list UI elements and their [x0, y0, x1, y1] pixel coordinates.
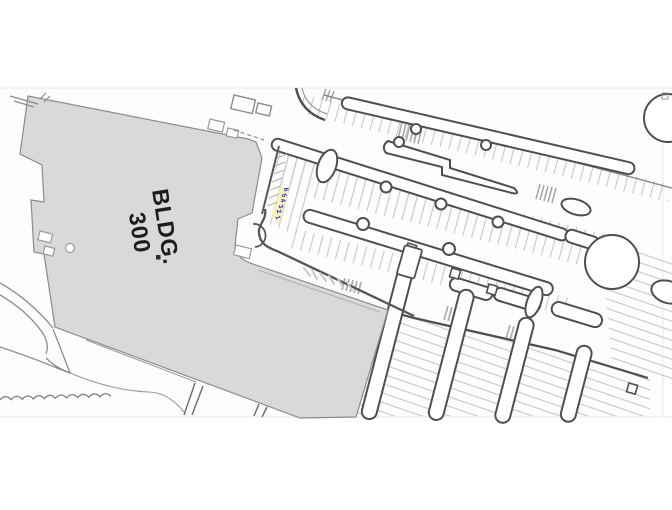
planter-square: [487, 284, 498, 295]
parking-island-bulb: [585, 235, 639, 289]
planter-square: [627, 383, 638, 394]
rooftop-unit: [226, 128, 239, 138]
site-plan-page: 6 5 4 3 2 1 BLDG. 300: [0, 0, 672, 510]
site-plan-canvas: 6 5 4 3 2 1 BLDG. 300: [0, 0, 672, 510]
rooftop-structure: [256, 103, 272, 116]
planter-square: [450, 268, 461, 279]
